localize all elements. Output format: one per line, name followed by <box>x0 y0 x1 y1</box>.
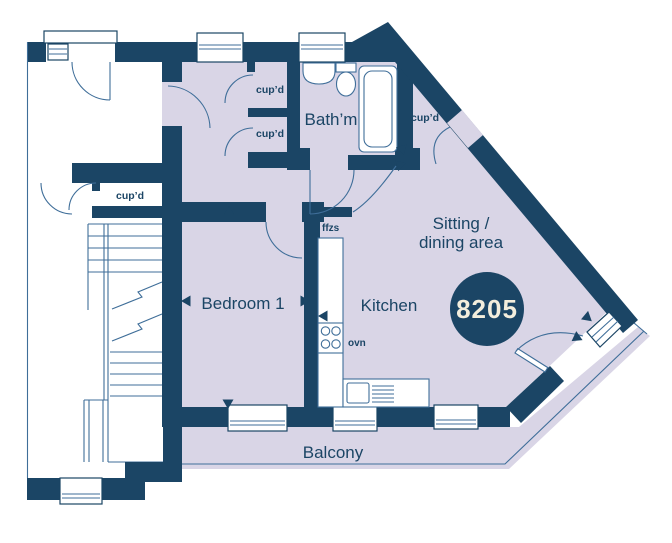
window-sitting <box>434 405 478 429</box>
staircase <box>84 224 163 462</box>
bathtub <box>359 66 397 152</box>
lobby-door-arc <box>41 183 72 214</box>
plot-number-badge: 8205 <box>450 272 524 346</box>
entrance-recess <box>44 31 117 60</box>
communal-area <box>28 42 164 478</box>
communal-cupboard-door-arc <box>69 183 96 210</box>
balcony-label: Balcony <box>303 443 364 462</box>
window-bedroom <box>228 405 287 431</box>
entry-doorway-floor <box>162 82 182 126</box>
cupboard4-label: cup’d <box>411 112 439 124</box>
bathroom-label: Bath’m <box>305 110 358 129</box>
window-top-2 <box>299 33 345 62</box>
plot-number: 8205 <box>456 294 518 324</box>
basin <box>303 63 335 84</box>
hob <box>318 323 343 353</box>
cupboard3-label: cup’d <box>116 190 144 202</box>
floor-plan-drawing: 8205 Bedroom 1 Kitchen Bath’m Sitting / … <box>0 0 672 543</box>
window-kitchen <box>333 405 377 431</box>
toilet <box>336 63 356 96</box>
bedroom-label: Bedroom 1 <box>201 294 284 313</box>
window-communal <box>60 478 102 504</box>
kitchen-label: Kitchen <box>361 296 418 315</box>
cupboard1-label: cup’d <box>256 84 284 96</box>
sitting-label-line1: Sitting / <box>433 214 490 233</box>
window-top-1 <box>197 33 243 62</box>
floor-plan-page: 8205 Bedroom 1 Kitchen Bath’m Sitting / … <box>0 0 672 543</box>
entrance-door-arc <box>72 62 110 100</box>
oven-label: ovn <box>348 338 366 349</box>
sitting-label-line2: dining area <box>419 233 504 252</box>
fridge-freezer-label: ffzs <box>322 223 340 234</box>
cupboard2-label: cup’d <box>256 128 284 140</box>
